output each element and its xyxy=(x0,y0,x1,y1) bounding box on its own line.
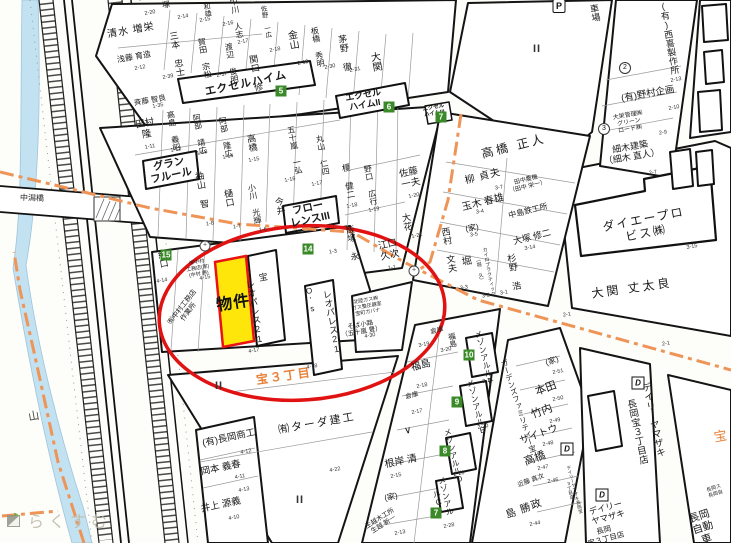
building-number-badge: 14 xyxy=(303,244,314,255)
building-number-badge: 7 xyxy=(431,508,442,519)
circled-number: 2 xyxy=(619,62,631,74)
empty-lot-mark: II xyxy=(296,494,304,506)
watermark: らくすむ xyxy=(6,508,112,532)
utility-mark: + xyxy=(200,241,211,252)
daily-yamazaki-icon: D xyxy=(596,489,609,502)
empty-lot-mark: II xyxy=(215,380,223,392)
parking-icon: P xyxy=(553,0,566,13)
empty-lot-mark: II xyxy=(533,43,541,55)
circled-number: 3 xyxy=(598,123,610,135)
bridge-label: 中潟橋 xyxy=(19,192,45,204)
building-number-badge: 5 xyxy=(276,86,287,97)
building-number-badge: 10 xyxy=(464,350,475,361)
building-number-badge: 9 xyxy=(452,397,463,408)
map-graphics xyxy=(0,0,731,543)
utility-mark: + xyxy=(409,266,420,277)
building-number-badge: 6 xyxy=(384,102,395,113)
map-canvas[interactable]: 塚和雄中川 人志佐野 一広清水 増栄浅藤 育造三本 忠士賀田 宗松渡辺 俊明関口… xyxy=(0,0,731,543)
building-number-badge: 15 xyxy=(161,250,172,261)
daily-yamazaki-icon: D xyxy=(632,377,645,390)
watermark-text: らくすむ xyxy=(28,508,112,532)
rakusumu-logo-icon xyxy=(6,512,22,528)
building-number-badge: 8 xyxy=(440,446,451,457)
daily-yamazaki-icon: D xyxy=(561,443,574,456)
building-number-badge: 7 xyxy=(436,112,447,123)
